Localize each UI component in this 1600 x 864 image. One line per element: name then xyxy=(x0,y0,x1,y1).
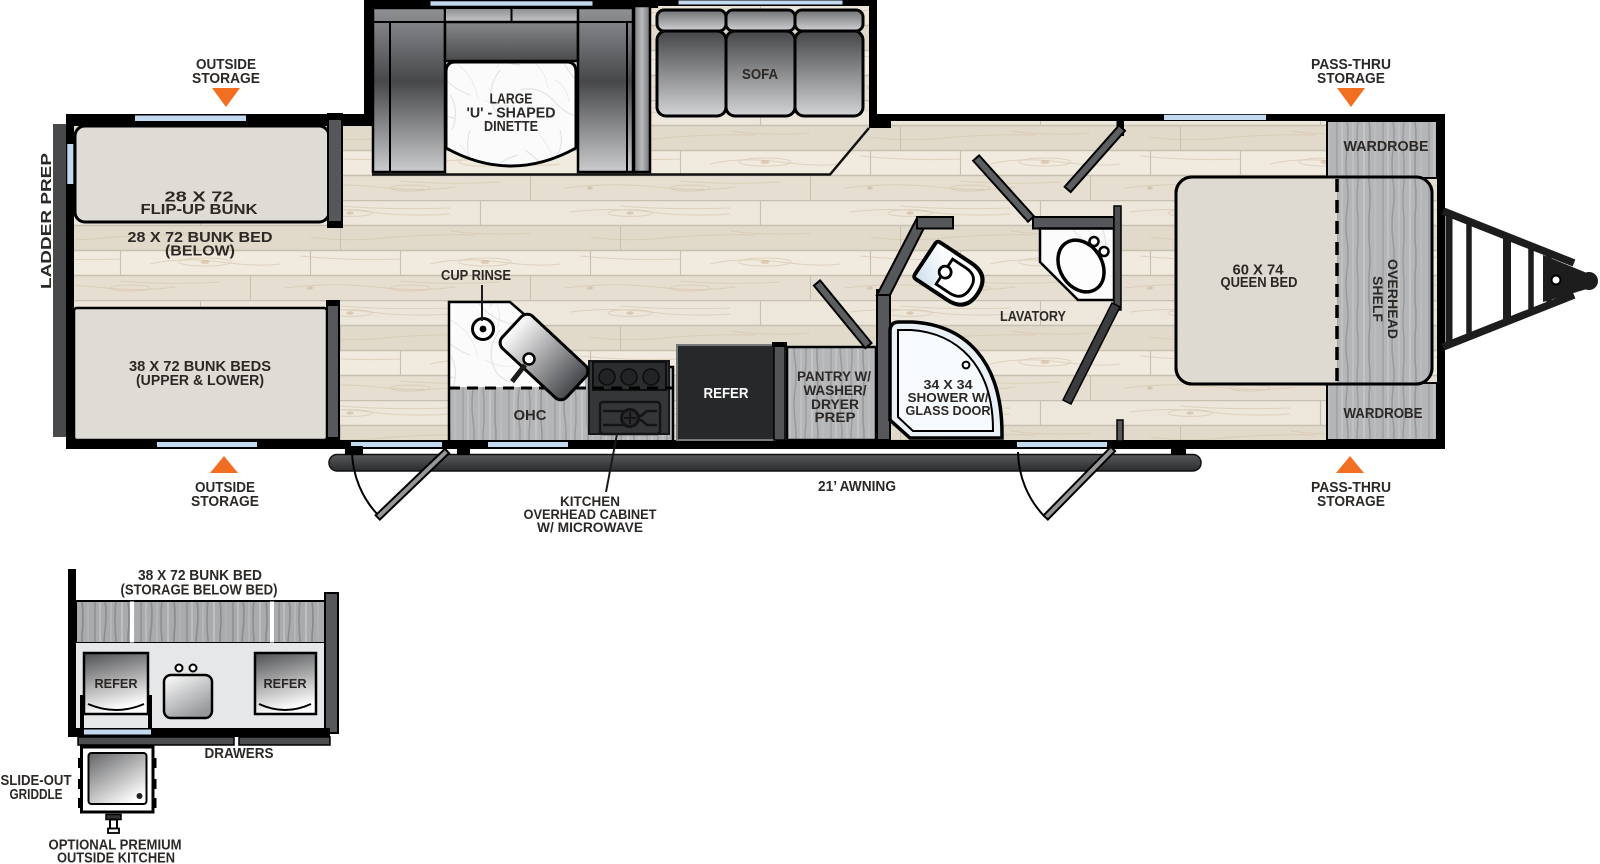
svg-text:CUP RINSE: CUP RINSE xyxy=(441,268,511,284)
svg-text:FLIP-UP BUNK: FLIP-UP BUNK xyxy=(141,202,259,218)
svg-text:SHELF: SHELF xyxy=(1370,276,1386,322)
svg-text:WASHER/: WASHER/ xyxy=(804,383,867,398)
svg-text:GRIDDLE: GRIDDLE xyxy=(10,787,63,803)
svg-text:PREP: PREP xyxy=(815,410,856,425)
svg-text:WARDROBE: WARDROBE xyxy=(1344,139,1429,155)
svg-text:STORAGE: STORAGE xyxy=(191,494,259,510)
svg-text:21’ AWNING: 21’ AWNING xyxy=(818,479,896,495)
svg-text:DRAWERS: DRAWERS xyxy=(205,746,274,762)
svg-text:DINETTE: DINETTE xyxy=(484,119,538,135)
svg-text:(UPPER & LOWER): (UPPER & LOWER) xyxy=(136,373,264,389)
svg-text:LAVATORY: LAVATORY xyxy=(1000,309,1066,325)
svg-text:STORAGE: STORAGE xyxy=(1317,494,1385,510)
svg-text:(STORAGE BELOW BED): (STORAGE BELOW BED) xyxy=(121,583,278,599)
svg-text:PANTRY W/: PANTRY W/ xyxy=(797,369,871,384)
svg-text:REFER: REFER xyxy=(264,676,308,691)
svg-text:WARDROBE: WARDROBE xyxy=(1344,406,1423,422)
svg-text:STORAGE: STORAGE xyxy=(1317,71,1385,87)
svg-text:REFER: REFER xyxy=(95,676,139,691)
svg-text:OHC: OHC xyxy=(514,408,548,424)
svg-text:SOFA: SOFA xyxy=(742,67,778,83)
svg-text:REFER: REFER xyxy=(704,386,749,402)
svg-text:W/ MICROWAVE: W/ MICROWAVE xyxy=(537,520,643,535)
svg-text:(BELOW): (BELOW) xyxy=(165,244,235,260)
svg-text:STORAGE: STORAGE xyxy=(192,71,260,87)
svg-text:OUTSIDE KITCHEN: OUTSIDE KITCHEN xyxy=(57,851,175,864)
svg-text:LADDER PREP: LADDER PREP xyxy=(38,153,55,289)
svg-text:OVERHEAD: OVERHEAD xyxy=(1385,259,1401,339)
svg-text:QUEEN BED: QUEEN BED xyxy=(1221,275,1298,291)
svg-text:GLASS DOOR: GLASS DOOR xyxy=(906,403,992,418)
